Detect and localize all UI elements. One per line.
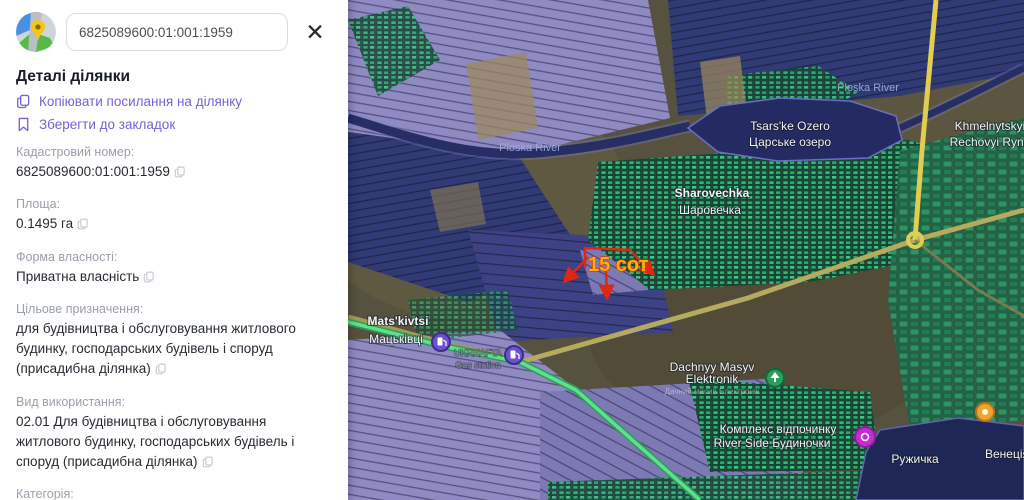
satellite-map[interactable]: Ploska River Ploska River Tsars'ke Ozero… <box>348 0 1024 500</box>
map-label-khmelnytskyi-1: Khmelnytskyi <box>955 119 1024 133</box>
copy-value-icon[interactable] <box>143 269 155 289</box>
copy-value-icon[interactable] <box>174 164 186 184</box>
map-label-tsarske-ozero-en: Tsars'ke Ozero <box>750 119 830 133</box>
field-area: Площа: 0.1495 га <box>16 197 332 236</box>
page-title: Деталі ділянки <box>16 68 332 86</box>
search-input[interactable] <box>66 13 288 51</box>
field-usage-type: Вид використання: 02.01 Для будівництва … <box>16 395 332 475</box>
map-label-sharovechka-ua: Шаровечка <box>679 203 741 217</box>
bookmark-icon <box>16 117 31 132</box>
copy-value-icon[interactable] <box>202 454 214 474</box>
app-window: ✕ Деталі ділянки Копіювати посилання на … <box>0 0 1024 500</box>
map-label-khmelnytskyi-2: Rechovyi Rynok <box>950 135 1024 149</box>
parcel-details-panel: ✕ Деталі ділянки Копіювати посилання на … <box>0 0 348 500</box>
field-cadastral-number: Кадастровий номер: 6825089600:01:001:195… <box>16 145 332 184</box>
map-label-dachnyy-2: Elektronik <box>686 372 740 386</box>
poi-marker-orange[interactable] <box>976 403 994 421</box>
map-label-ploska-river-2: Ploska River <box>837 82 899 94</box>
panel-header: ✕ <box>16 0 332 52</box>
park-marker-green[interactable] <box>766 369 784 387</box>
area-annotation-text: 15 сот <box>588 254 649 276</box>
map-label-matskivtsi-en: Mats'kivtsi <box>368 314 429 328</box>
copy-value-icon[interactable] <box>77 216 89 236</box>
close-icon[interactable]: ✕ <box>298 15 332 49</box>
bookmark-button[interactable]: Зберегти до закладок <box>16 117 332 132</box>
field-category: Категорія: Землі житлової та громадської… <box>16 487 332 500</box>
bookmark-label: Зберегти до закладок <box>39 117 175 132</box>
gas-station-marker[interactable] <box>432 333 450 351</box>
gas-station-marker[interactable] <box>505 346 523 364</box>
field-purpose: Цільове призначення: для будівництва і о… <box>16 302 332 382</box>
map-label-ukrnafta: UKRNAFTA <box>454 348 502 358</box>
poi-marker-magenta[interactable] <box>855 427 875 447</box>
map-label-ploska-river-1: Ploska River <box>499 142 561 154</box>
field-ownership: Форма власності: Приватна власність <box>16 250 332 289</box>
map-label-sharovechka-en: Sharovechka <box>675 186 750 200</box>
map-label-matskivtsi-ua: Мацьківці <box>369 332 423 346</box>
map-label-complex-1: Комплекс відпочинку <box>720 422 837 436</box>
map-label-ruzhychka: Ружичка <box>891 452 939 466</box>
copy-icon <box>16 94 31 109</box>
map-label-tsarske-ozero-ua: Царське озеро <box>749 135 831 149</box>
copy-value-icon[interactable] <box>155 361 167 381</box>
map-label-complex-2: River Side Будиночки <box>714 436 831 450</box>
map-label-venetsiia: Венеція <box>985 447 1024 461</box>
copy-link-label: Копіювати посилання на ділянку <box>39 94 242 109</box>
map-label-gas-station: Gas station <box>455 360 501 370</box>
app-logo-icon[interactable] <box>16 12 56 52</box>
copy-link-button[interactable]: Копіювати посилання на ділянку <box>16 94 332 109</box>
map-label-dachnyy-ua: Дачний масив Електронік <box>665 387 760 396</box>
